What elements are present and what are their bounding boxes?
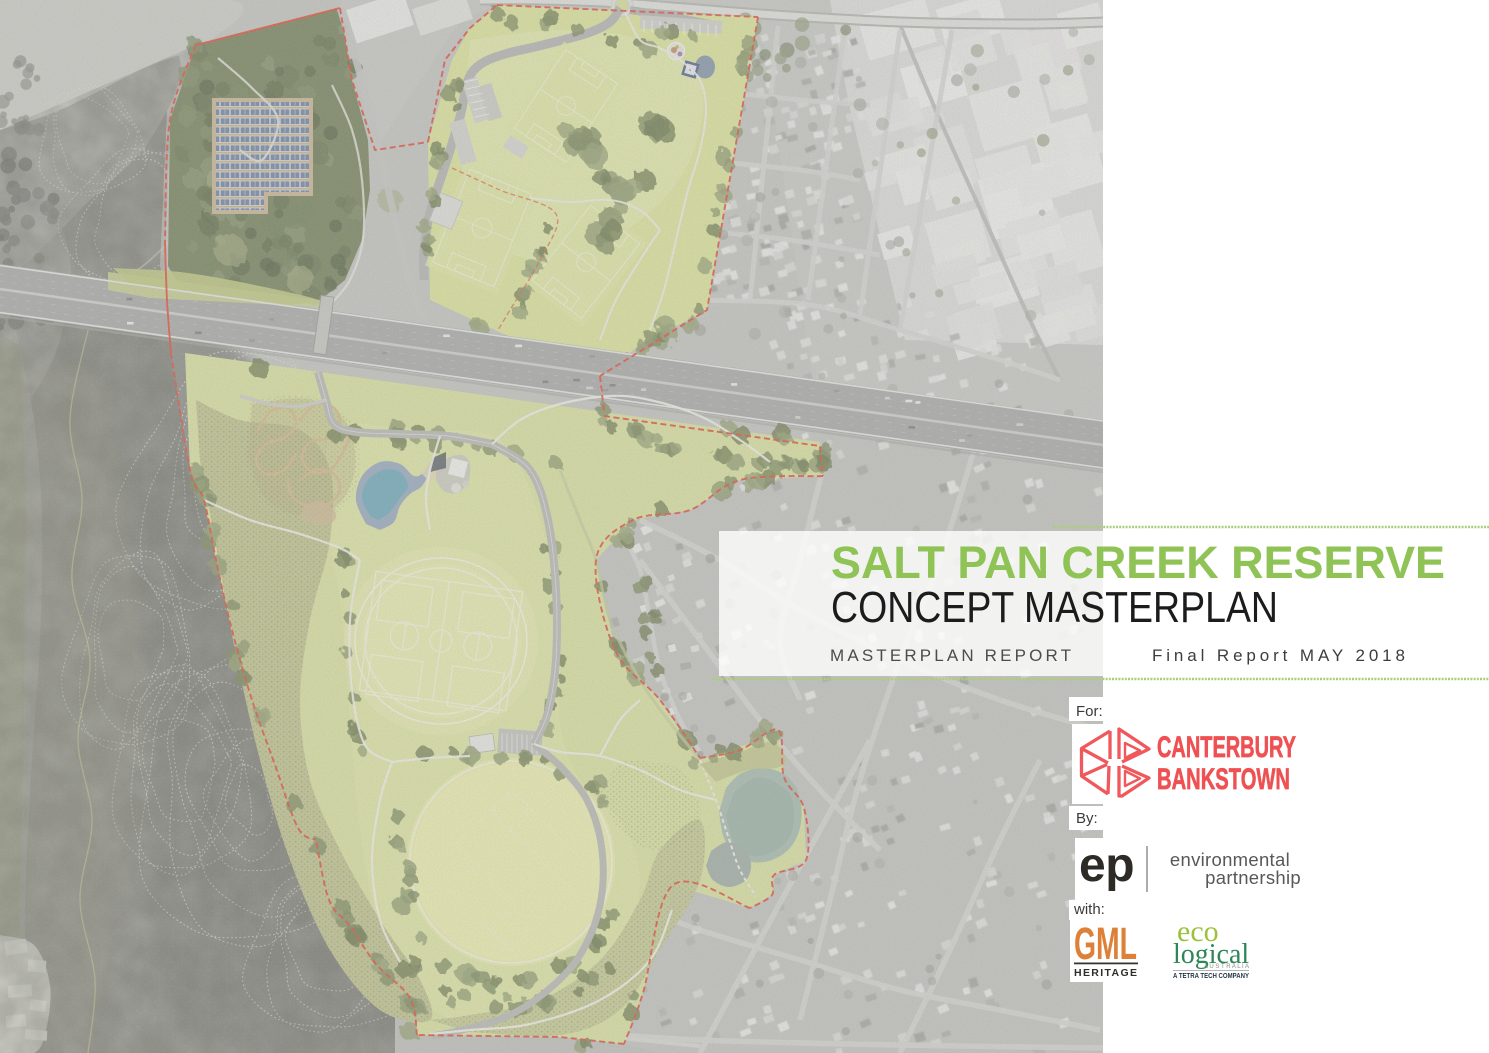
svg-text:For:: For:: [1076, 703, 1103, 720]
svg-text:MASTERPLAN REPORT: MASTERPLAN REPORT: [830, 646, 1071, 665]
svg-text:CONCEPT MASTERPLAN: CONCEPT MASTERPLAN: [831, 583, 1278, 632]
svg-text:A U S T R A L I A: A U S T R A L I A: [1204, 964, 1249, 970]
svg-text:with:: with:: [1073, 901, 1105, 918]
svg-text:GML: GML: [1074, 918, 1137, 969]
svg-text:A TETRA TECH COMPANY: A TETRA TECH COMPANY: [1173, 971, 1249, 980]
svg-text:By:: By:: [1076, 810, 1098, 827]
svg-text:HERITAGE: HERITAGE: [1074, 967, 1137, 979]
svg-text:ep: ep: [1079, 839, 1134, 892]
svg-text:partnership: partnership: [1205, 867, 1301, 888]
svg-text:CANTERBURY: CANTERBURY: [1157, 731, 1296, 764]
svg-text:SALT PAN CREEK RESERVE: SALT PAN CREEK RESERVE: [831, 537, 1445, 588]
svg-text:BANKSTOWN: BANKSTOWN: [1157, 763, 1290, 796]
